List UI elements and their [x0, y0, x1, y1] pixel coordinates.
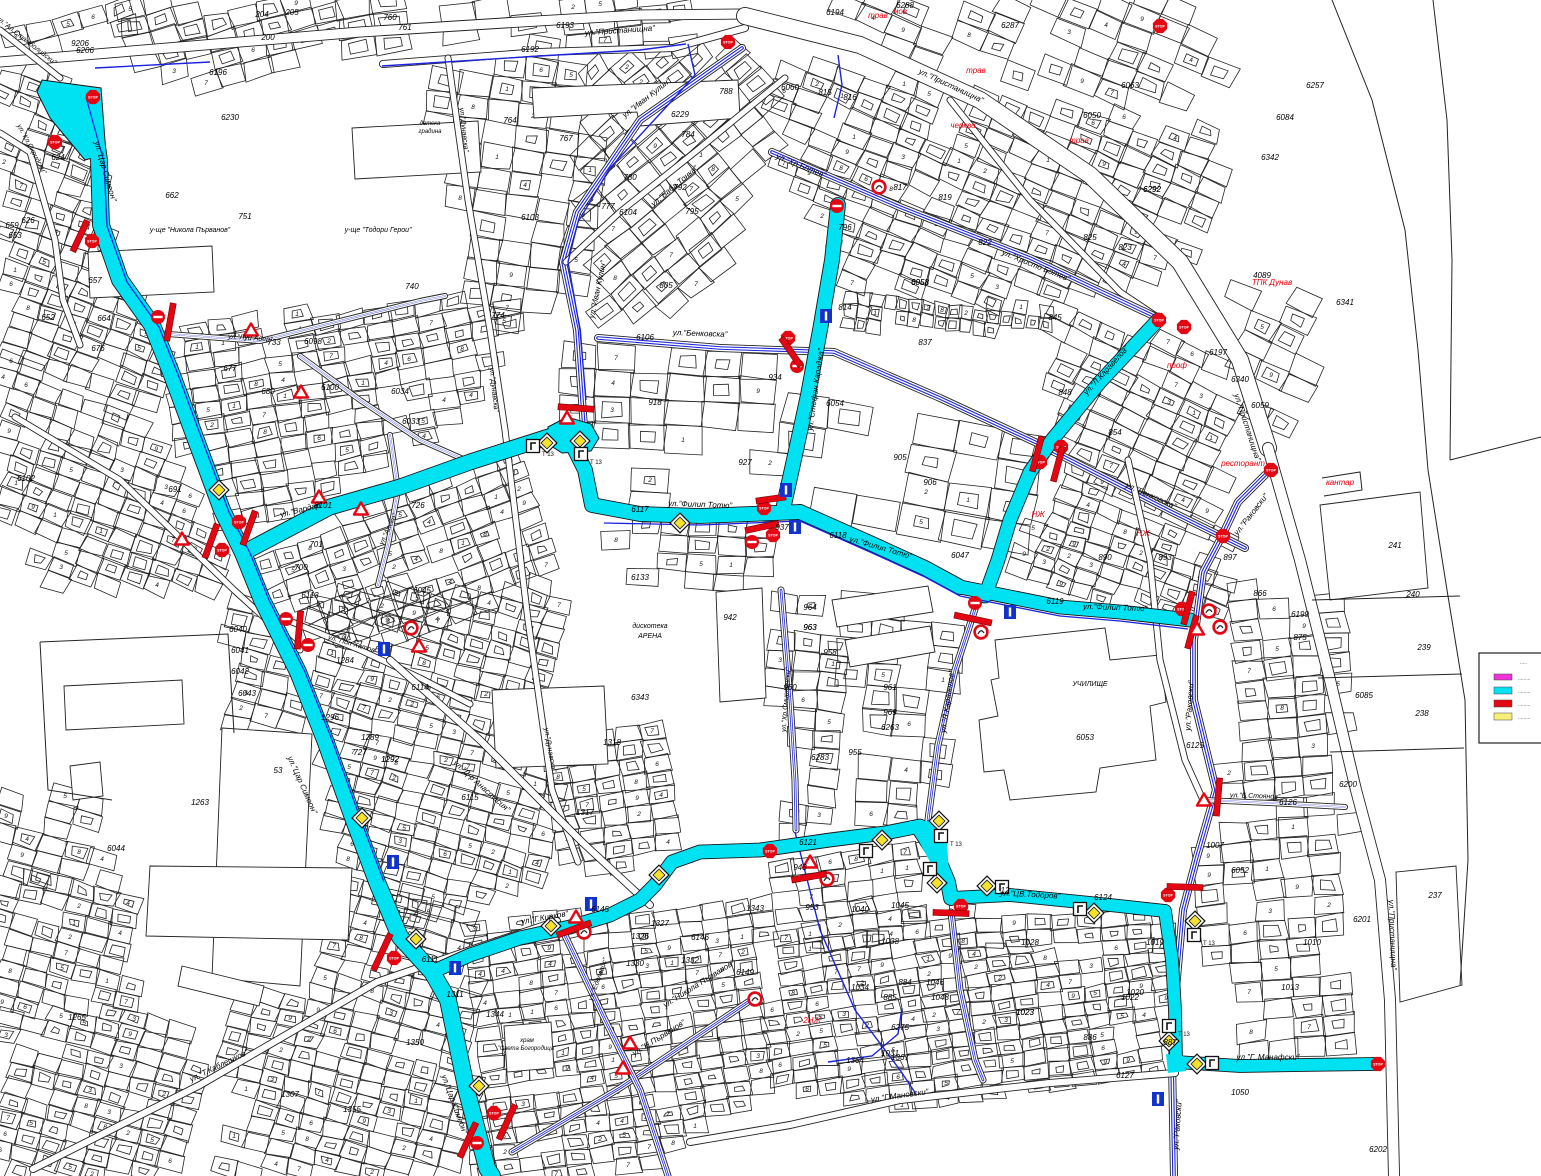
svg-text:8: 8: [439, 548, 443, 555]
svg-text:8: 8: [791, 990, 795, 997]
svg-text:9: 9: [1012, 920, 1016, 927]
svg-text:8: 8: [422, 660, 426, 667]
svg-text:STOP: STOP: [1154, 319, 1164, 323]
svg-text:767: 767: [559, 134, 573, 143]
svg-text:4: 4: [1104, 22, 1108, 29]
svg-text:дискотека: дискотека: [632, 622, 667, 630]
svg-text:9: 9: [1059, 581, 1063, 588]
svg-text:1: 1: [232, 1133, 236, 1140]
svg-text:815: 815: [818, 88, 832, 97]
svg-text:5: 5: [341, 606, 345, 613]
svg-text:6: 6: [815, 1001, 819, 1008]
svg-text:6: 6: [1190, 351, 1194, 358]
svg-text:STOP: STOP: [723, 41, 733, 45]
svg-text:1: 1: [880, 868, 884, 875]
svg-text:8: 8: [346, 856, 350, 863]
svg-text:7: 7: [784, 935, 788, 942]
svg-text:6044: 6044: [107, 844, 125, 853]
svg-text:1: 1: [283, 393, 287, 400]
svg-text:1: 1: [831, 661, 835, 668]
svg-text:792: 792: [673, 183, 687, 192]
svg-text:6047: 6047: [951, 551, 969, 560]
svg-text:1: 1: [1265, 866, 1269, 873]
svg-text:3: 3: [386, 618, 390, 625]
svg-text:5: 5: [415, 595, 419, 602]
svg-text:1: 1: [905, 865, 909, 872]
svg-text:4: 4: [523, 182, 527, 189]
svg-text:2: 2: [401, 1145, 406, 1152]
svg-text:НЖ: НЖ: [1136, 529, 1150, 538]
svg-text:4: 4: [611, 380, 615, 387]
svg-text:9: 9: [1126, 1057, 1130, 1064]
svg-text:7: 7: [1247, 668, 1251, 675]
svg-text:5: 5: [278, 361, 282, 368]
svg-text:7: 7: [6, 1115, 10, 1122]
svg-text:680: 680: [261, 387, 275, 396]
svg-text:9: 9: [845, 149, 849, 156]
svg-text:6229: 6229: [671, 110, 689, 119]
svg-text:784: 784: [681, 130, 695, 139]
svg-text:АРЕНА: АРЕНА: [637, 633, 662, 640]
svg-text:7: 7: [857, 966, 861, 973]
svg-text:3: 3: [452, 729, 456, 736]
svg-text:1355: 1355: [343, 1105, 361, 1114]
svg-text:6: 6: [317, 435, 321, 442]
svg-text:4: 4: [500, 509, 504, 516]
svg-text:8: 8: [8, 968, 12, 975]
svg-text:7: 7: [1307, 1024, 1311, 1031]
svg-text:2: 2: [931, 1012, 936, 1019]
svg-text:2: 2: [814, 81, 819, 88]
svg-text:6054: 6054: [826, 399, 844, 408]
svg-text:7: 7: [19, 183, 23, 190]
svg-text:8: 8: [967, 32, 971, 39]
svg-text:5: 5: [964, 143, 968, 150]
svg-text:4: 4: [25, 836, 29, 843]
svg-text:6121: 6121: [799, 838, 817, 847]
svg-text:6034: 6034: [391, 387, 409, 396]
svg-text:4: 4: [590, 1075, 594, 1082]
svg-text:8: 8: [961, 938, 965, 945]
svg-text:3: 3: [778, 657, 782, 664]
svg-text:ТПК Дунав: ТПК Дунав: [1252, 278, 1292, 287]
svg-text:3: 3: [1042, 559, 1046, 566]
svg-text:823: 823: [1118, 243, 1132, 252]
svg-text:1045: 1045: [891, 901, 909, 910]
svg-text:9: 9: [608, 1044, 612, 1051]
svg-text:8: 8: [613, 275, 617, 282]
svg-text:8: 8: [483, 531, 487, 538]
svg-text:1343: 1343: [746, 904, 764, 913]
svg-text:7: 7: [370, 770, 374, 777]
svg-text:6: 6: [1272, 606, 1276, 613]
svg-text:5: 5: [42, 259, 46, 266]
svg-text:2: 2: [67, 934, 72, 941]
svg-text:653: 653: [8, 231, 22, 240]
svg-text:9: 9: [1140, 16, 1144, 23]
svg-text:6: 6: [309, 1120, 313, 1127]
svg-text:1028: 1028: [1021, 938, 1039, 947]
svg-text:6: 6: [828, 859, 832, 866]
svg-text:2: 2: [483, 691, 488, 698]
svg-text:STOP: STOP: [1179, 326, 1189, 330]
svg-text:1: 1: [505, 86, 509, 93]
svg-text:1327: 1327: [651, 919, 669, 928]
svg-text:8: 8: [77, 849, 81, 856]
svg-text:1364: 1364: [846, 1056, 864, 1065]
svg-text:6343: 6343: [631, 693, 649, 702]
svg-text:676: 676: [91, 344, 105, 353]
svg-text:4: 4: [478, 971, 482, 978]
svg-text:2: 2: [981, 1019, 986, 1026]
svg-text:6102: 6102: [17, 474, 35, 483]
svg-text:6340: 6340: [1231, 375, 1249, 384]
svg-text:1007: 1007: [1206, 841, 1224, 850]
svg-text:9: 9: [1022, 551, 1026, 558]
svg-text:822: 822: [978, 238, 992, 247]
svg-text:1046: 1046: [926, 978, 944, 987]
svg-text:845: 845: [1048, 313, 1062, 322]
svg-text:T 13: T 13: [1178, 1032, 1191, 1038]
svg-text:7: 7: [603, 37, 607, 44]
svg-text:4: 4: [1181, 497, 1185, 504]
svg-text:.....: .....: [1520, 660, 1527, 666]
svg-text:7: 7: [332, 943, 336, 950]
svg-text:4: 4: [1189, 57, 1193, 64]
svg-text:1: 1: [941, 677, 945, 684]
svg-text:8: 8: [1249, 1029, 1253, 1036]
svg-text:9: 9: [1206, 853, 1210, 860]
svg-text:4: 4: [548, 961, 552, 968]
svg-text:5: 5: [60, 965, 64, 972]
svg-text:5: 5: [347, 764, 351, 771]
svg-text:958: 958: [823, 648, 837, 657]
svg-text:7: 7: [1153, 255, 1157, 262]
svg-text:4: 4: [469, 392, 473, 399]
svg-text:6033: 6033: [402, 417, 420, 426]
svg-text:STOP: STOP: [1218, 535, 1228, 539]
svg-text:9: 9: [0, 999, 4, 1006]
svg-text:3: 3: [270, 1076, 274, 1083]
svg-text:9: 9: [1071, 993, 1075, 1000]
svg-text:6060: 6060: [781, 83, 799, 92]
svg-text:8: 8: [305, 1136, 309, 1143]
svg-text:897: 897: [1223, 553, 1237, 562]
svg-text:1318: 1318: [603, 738, 621, 747]
svg-text:9: 9: [1080, 78, 1084, 85]
svg-text:780: 780: [623, 173, 637, 182]
svg-text:760: 760: [383, 13, 397, 22]
svg-text:2: 2: [504, 883, 509, 890]
svg-text:1: 1: [494, 494, 498, 501]
svg-text:6: 6: [443, 851, 447, 858]
svg-text:237: 237: [1427, 891, 1442, 900]
svg-text:9: 9: [4, 813, 8, 820]
svg-text:6: 6: [9, 281, 13, 288]
svg-text:5: 5: [59, 1013, 63, 1020]
svg-text:6201: 6201: [1353, 915, 1371, 924]
svg-text:STOP: STOP: [87, 240, 97, 244]
svg-text:STOP: STOP: [956, 905, 966, 909]
svg-text:7: 7: [262, 412, 266, 419]
svg-text:814: 814: [838, 303, 852, 312]
svg-text:6119: 6119: [1046, 597, 1064, 606]
svg-text:5: 5: [582, 786, 586, 793]
svg-text:6111: 6111: [422, 955, 439, 964]
svg-text:1: 1: [699, 152, 703, 159]
svg-text:1050: 1050: [1231, 1088, 1249, 1097]
svg-text:3: 3: [756, 1053, 760, 1060]
svg-text:1289: 1289: [361, 733, 379, 742]
svg-text:2: 2: [391, 775, 396, 782]
svg-text:2: 2: [925, 305, 930, 312]
svg-text:5: 5: [394, 590, 398, 597]
svg-text:659: 659: [5, 221, 19, 230]
svg-text:у-ще ”Тодори Герои”: у-ще ”Тодори Герои”: [344, 226, 412, 234]
svg-text:3: 3: [901, 154, 905, 161]
svg-text:6115: 6115: [461, 793, 479, 802]
svg-text:1: 1: [508, 869, 512, 876]
svg-text:1: 1: [852, 134, 856, 141]
svg-text:886: 886: [1083, 1033, 1097, 1042]
svg-text:НЖ: НЖ: [1031, 510, 1045, 519]
svg-text:1: 1: [530, 1009, 534, 1016]
svg-text:3: 3: [1268, 908, 1272, 915]
svg-text:624: 624: [51, 153, 65, 162]
svg-text:6050: 6050: [1083, 111, 1101, 120]
svg-text:7: 7: [204, 80, 208, 87]
svg-text:6114: 6114: [411, 683, 429, 692]
svg-text:4: 4: [1142, 1012, 1146, 1019]
svg-text:2: 2: [278, 1047, 283, 1054]
svg-text:6: 6: [655, 761, 659, 768]
svg-text:8: 8: [359, 935, 363, 942]
svg-text:664: 664: [97, 314, 111, 323]
svg-text:T 13: T 13: [542, 452, 555, 458]
svg-text:3: 3: [1089, 963, 1093, 970]
svg-text:7: 7: [1045, 230, 1049, 237]
svg-text:2: 2: [597, 1136, 602, 1143]
svg-text:1: 1: [295, 311, 299, 318]
svg-text:6: 6: [896, 1074, 900, 1081]
svg-text:885: 885: [883, 993, 897, 1002]
svg-text:трав: трав: [1069, 136, 1089, 145]
svg-text:STOP: STOP: [489, 1112, 499, 1116]
svg-text:6133: 6133: [631, 573, 649, 582]
svg-text:677: 677: [223, 364, 237, 373]
svg-text:ул.”Г. Манафски”: ул.”Г. Манафски”: [1236, 1053, 1300, 1062]
svg-text:1: 1: [414, 1098, 418, 1105]
svg-text:8: 8: [614, 537, 618, 544]
svg-text:777: 777: [601, 202, 615, 211]
svg-text:700: 700: [294, 563, 308, 572]
svg-text:у-ще ”Никола Първанов”: у-ще ”Никола Първанов”: [149, 227, 231, 234]
svg-text:6125: 6125: [1186, 741, 1204, 750]
svg-text:9: 9: [653, 143, 657, 150]
svg-text:6: 6: [407, 356, 411, 363]
svg-text:1292: 1292: [381, 755, 399, 764]
svg-text:2: 2: [926, 971, 931, 978]
svg-text:4: 4: [666, 839, 670, 846]
svg-text:9: 9: [31, 504, 35, 511]
svg-text:5: 5: [827, 719, 831, 726]
svg-text:6: 6: [1114, 945, 1118, 952]
svg-text:7: 7: [329, 353, 333, 360]
svg-text:6194: 6194: [826, 8, 844, 17]
svg-text:626: 626: [21, 216, 35, 225]
svg-text:3: 3: [842, 1011, 846, 1018]
svg-text:2: 2: [161, 1091, 166, 1098]
svg-text:3: 3: [1167, 399, 1171, 406]
svg-text:4: 4: [535, 860, 539, 867]
svg-text:934: 934: [768, 373, 782, 382]
svg-text:8: 8: [1043, 955, 1047, 962]
svg-text:6263: 6263: [881, 723, 899, 732]
svg-text:7: 7: [554, 1171, 558, 1176]
svg-text:1: 1: [873, 310, 877, 317]
svg-text:7: 7: [718, 952, 722, 959]
svg-text:2: 2: [409, 701, 414, 708]
svg-text:8: 8: [634, 779, 638, 786]
svg-text:7: 7: [362, 705, 366, 712]
svg-text:6104: 6104: [619, 208, 637, 217]
svg-text:662: 662: [165, 191, 179, 200]
svg-text:1010: 1010: [1303, 938, 1321, 947]
svg-text:953: 953: [805, 903, 819, 912]
svg-text:черква: черква: [950, 121, 976, 130]
svg-text:6084: 6084: [1276, 113, 1294, 122]
svg-text:6: 6: [23, 1004, 27, 1011]
svg-text:6: 6: [915, 929, 919, 936]
svg-text:2: 2: [490, 849, 495, 856]
svg-text:4: 4: [1122, 261, 1126, 268]
svg-text:1: 1: [611, 1057, 615, 1064]
svg-text:1: 1: [244, 1086, 248, 1093]
svg-text:6101: 6101: [314, 501, 332, 510]
svg-text:4: 4: [160, 500, 164, 507]
svg-text:241: 241: [1387, 541, 1401, 550]
svg-text:7: 7: [650, 728, 654, 735]
svg-text:657: 657: [88, 276, 102, 285]
svg-text:5: 5: [137, 345, 141, 352]
svg-text:9: 9: [1302, 623, 1306, 630]
svg-text:7: 7: [554, 990, 558, 997]
svg-text:6145: 6145: [591, 905, 609, 914]
svg-text:1013: 1013: [1281, 983, 1299, 992]
svg-text:7: 7: [669, 252, 673, 259]
svg-text:1: 1: [105, 978, 109, 985]
svg-text:9: 9: [1072, 541, 1076, 548]
svg-text:1265: 1265: [68, 1013, 86, 1022]
svg-text:5: 5: [63, 793, 67, 800]
svg-text:кантар: кантар: [1326, 478, 1355, 487]
svg-text:5: 5: [919, 519, 923, 526]
svg-text:4: 4: [888, 916, 892, 923]
svg-text:9: 9: [20, 852, 24, 859]
svg-text:4: 4: [972, 951, 976, 958]
svg-text:1326: 1326: [631, 932, 649, 941]
svg-text:4: 4: [483, 1000, 487, 1007]
svg-text:3: 3: [995, 284, 999, 291]
svg-text:2: 2: [1066, 553, 1071, 560]
svg-text:9: 9: [667, 945, 671, 952]
svg-text:9: 9: [547, 945, 551, 952]
svg-text:1034: 1034: [851, 983, 869, 992]
svg-text:240: 240: [1405, 590, 1420, 599]
svg-text:9: 9: [288, 1015, 292, 1022]
svg-text:трав: трав: [966, 66, 986, 75]
svg-text:5: 5: [323, 975, 327, 982]
svg-text:960: 960: [783, 683, 797, 692]
svg-text:937: 937: [775, 523, 789, 532]
svg-text:9206: 9206: [71, 39, 89, 48]
svg-text:5: 5: [1120, 1013, 1124, 1020]
svg-text:6: 6: [3, 1131, 7, 1138]
svg-text:6199: 6199: [1291, 610, 1309, 619]
svg-text:7: 7: [544, 562, 548, 569]
svg-text:5: 5: [64, 550, 68, 557]
svg-text:2: 2: [1, 159, 6, 166]
svg-text:9: 9: [756, 388, 760, 395]
svg-text:6202: 6202: [1369, 1145, 1387, 1154]
svg-text:955: 955: [848, 748, 862, 757]
svg-text:8: 8: [711, 166, 715, 173]
svg-text:817: 817: [893, 183, 907, 192]
svg-text:825: 825: [1083, 233, 1097, 242]
svg-text:4: 4: [427, 519, 431, 526]
svg-text:4: 4: [904, 767, 908, 774]
svg-text:8: 8: [912, 317, 916, 324]
svg-text:8: 8: [84, 1103, 88, 1110]
svg-text:8: 8: [460, 346, 464, 353]
svg-text:3: 3: [387, 1108, 391, 1115]
svg-text:7: 7: [614, 355, 618, 362]
svg-text:9: 9: [7, 428, 11, 435]
svg-text:4: 4: [155, 582, 159, 589]
svg-text:9: 9: [370, 676, 374, 683]
svg-text:6126: 6126: [1279, 798, 1297, 807]
svg-text:7: 7: [626, 1162, 630, 1169]
svg-text:6118: 6118: [829, 531, 847, 540]
svg-text:5: 5: [66, 21, 70, 28]
svg-text:9: 9: [509, 272, 513, 279]
svg-text:6287: 6287: [1001, 21, 1019, 30]
svg-text:1: 1: [1291, 824, 1295, 831]
svg-text:T 13: T 13: [950, 842, 963, 848]
svg-text:2: 2: [923, 489, 928, 496]
svg-text:6059: 6059: [1251, 401, 1269, 410]
svg-text:1: 1: [588, 167, 592, 174]
svg-text:6040: 6040: [229, 625, 247, 634]
svg-text:1040: 1040: [851, 905, 869, 914]
svg-text:854: 854: [1108, 428, 1122, 437]
svg-text:7: 7: [666, 1111, 670, 1118]
svg-text:5: 5: [944, 1080, 948, 1087]
svg-text:3: 3: [1311, 743, 1315, 750]
svg-text:5: 5: [29, 1120, 33, 1127]
svg-text:5: 5: [1274, 966, 1278, 973]
svg-text:6: 6: [770, 1007, 774, 1014]
svg-text:9: 9: [847, 1066, 851, 1073]
svg-text:866: 866: [1253, 589, 1267, 598]
svg-text:8: 8: [671, 1140, 675, 1147]
svg-text:проф: проф: [1167, 361, 1187, 370]
svg-text:6106: 6106: [636, 333, 654, 342]
svg-text:1317: 1317: [576, 808, 594, 817]
svg-text:6058: 6058: [911, 278, 929, 287]
svg-text:1: 1: [1019, 304, 1023, 311]
svg-text:9: 9: [635, 795, 639, 802]
